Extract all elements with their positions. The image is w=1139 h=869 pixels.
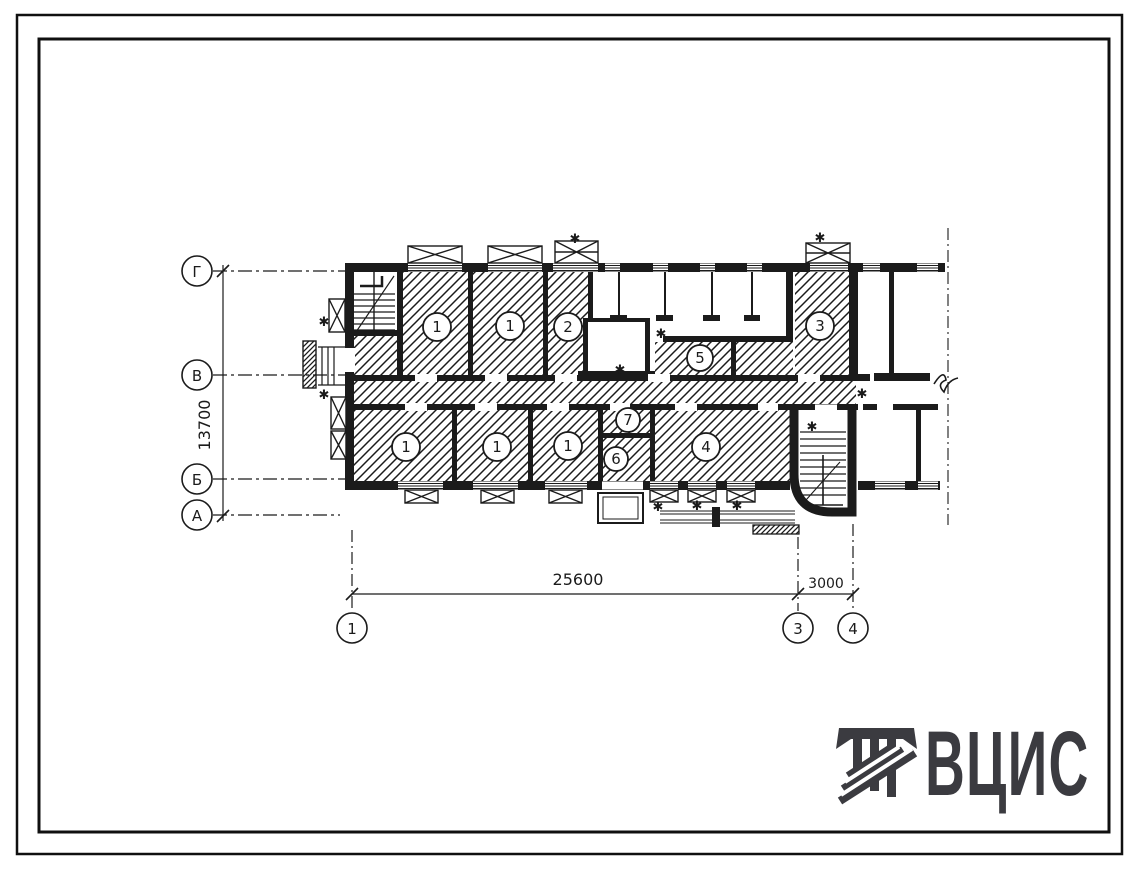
break-line — [934, 228, 958, 525]
walkway — [660, 511, 795, 523]
axis-circle-3: 3 — [783, 613, 813, 643]
axis-label: 1 — [347, 620, 357, 638]
axis-circle-v: В — [182, 360, 212, 390]
vent-box — [329, 299, 345, 332]
dim-main-label: 25600 — [553, 570, 604, 589]
floor-plan-drawing: ✱ ✱ ✱ ✱ ✱ ✱ ✱ ✱ ✱ ✱ ✱ 1 1 2 3 5 1 1 1 7 … — [0, 0, 1139, 869]
vent-box — [806, 243, 850, 263]
room-circle: 1 — [423, 313, 451, 341]
axis-label: Г — [192, 263, 201, 281]
room-circle: 1 — [483, 433, 511, 461]
vent-box — [481, 490, 514, 503]
logo-icon — [836, 728, 917, 801]
room-label: 5 — [695, 349, 705, 367]
axis-label: 3 — [793, 620, 803, 638]
room-label: 4 — [701, 438, 711, 456]
entrance-porch — [303, 341, 345, 388]
star-icon: ✱ — [857, 387, 868, 402]
bottom-wall-windows — [398, 482, 938, 490]
star-icon: ✱ — [692, 499, 703, 514]
vent-box — [488, 246, 542, 263]
star-icon: ✱ — [570, 232, 581, 247]
section-divider-wall — [849, 263, 858, 381]
axis-circle-4: 4 — [838, 613, 868, 643]
stair-top-left — [353, 272, 395, 332]
axis-circle-a: А — [182, 500, 212, 530]
room-circle: 7 — [616, 408, 640, 432]
axis-label: В — [192, 367, 202, 385]
dim-vertical-label: 13700 — [195, 400, 214, 451]
ramp — [753, 525, 799, 534]
room-label: 1 — [432, 318, 442, 336]
axis-label: А — [192, 507, 203, 525]
star-icon: ✱ — [319, 388, 330, 403]
room-circle: 3 — [806, 312, 834, 340]
vent-box — [408, 246, 462, 263]
star-icon: ✱ — [815, 231, 826, 246]
col-axes: 25600 3000 1 3 4 — [337, 524, 868, 643]
entrance-door-gap — [344, 348, 355, 372]
room-circle: 4 — [692, 433, 720, 461]
dim-side-label: 3000 — [808, 576, 844, 592]
room-circle: 5 — [687, 345, 713, 371]
room-label: 1 — [563, 437, 573, 455]
axis-circle-g: Г — [182, 256, 212, 286]
stair-bottom-right — [790, 404, 858, 512]
room-circle: 2 — [554, 313, 582, 341]
vent-box — [549, 490, 582, 503]
room-label: 1 — [401, 438, 411, 456]
room-circle: 1 — [392, 433, 420, 461]
vent-box — [331, 397, 346, 429]
scanned-drawing-page: ✱ ✱ ✱ ✱ ✱ ✱ ✱ ✱ ✱ ✱ ✱ 1 1 2 3 5 1 1 1 7 … — [0, 0, 1139, 869]
room-circle: 1 — [496, 312, 524, 340]
room-circle: 6 — [604, 447, 628, 471]
room-label: 1 — [505, 317, 515, 335]
star-icon: ✱ — [656, 327, 667, 342]
vent-box — [405, 490, 438, 503]
star-icon: ✱ — [807, 420, 818, 435]
room-label: 7 — [623, 411, 633, 429]
star-icon: ✱ — [732, 499, 743, 514]
axis-label: Б — [192, 471, 202, 489]
room-label: 3 — [815, 317, 825, 335]
room-label: 6 — [611, 450, 621, 468]
axis-label: 4 — [848, 620, 858, 638]
room-label: 1 — [492, 438, 502, 456]
star-icon: ✱ — [319, 315, 330, 330]
axis-circle-b: Б — [182, 464, 212, 494]
logo: ВЦИС — [836, 713, 1090, 816]
axis-circle-1: 1 — [337, 613, 367, 643]
room-label: 2 — [563, 318, 573, 336]
star-icon: ✱ — [615, 363, 626, 378]
star-icon: ✱ — [653, 500, 664, 515]
vent-box — [331, 431, 346, 459]
room-circle: 1 — [554, 432, 582, 460]
logo-text: ВЦИС — [925, 713, 1090, 816]
